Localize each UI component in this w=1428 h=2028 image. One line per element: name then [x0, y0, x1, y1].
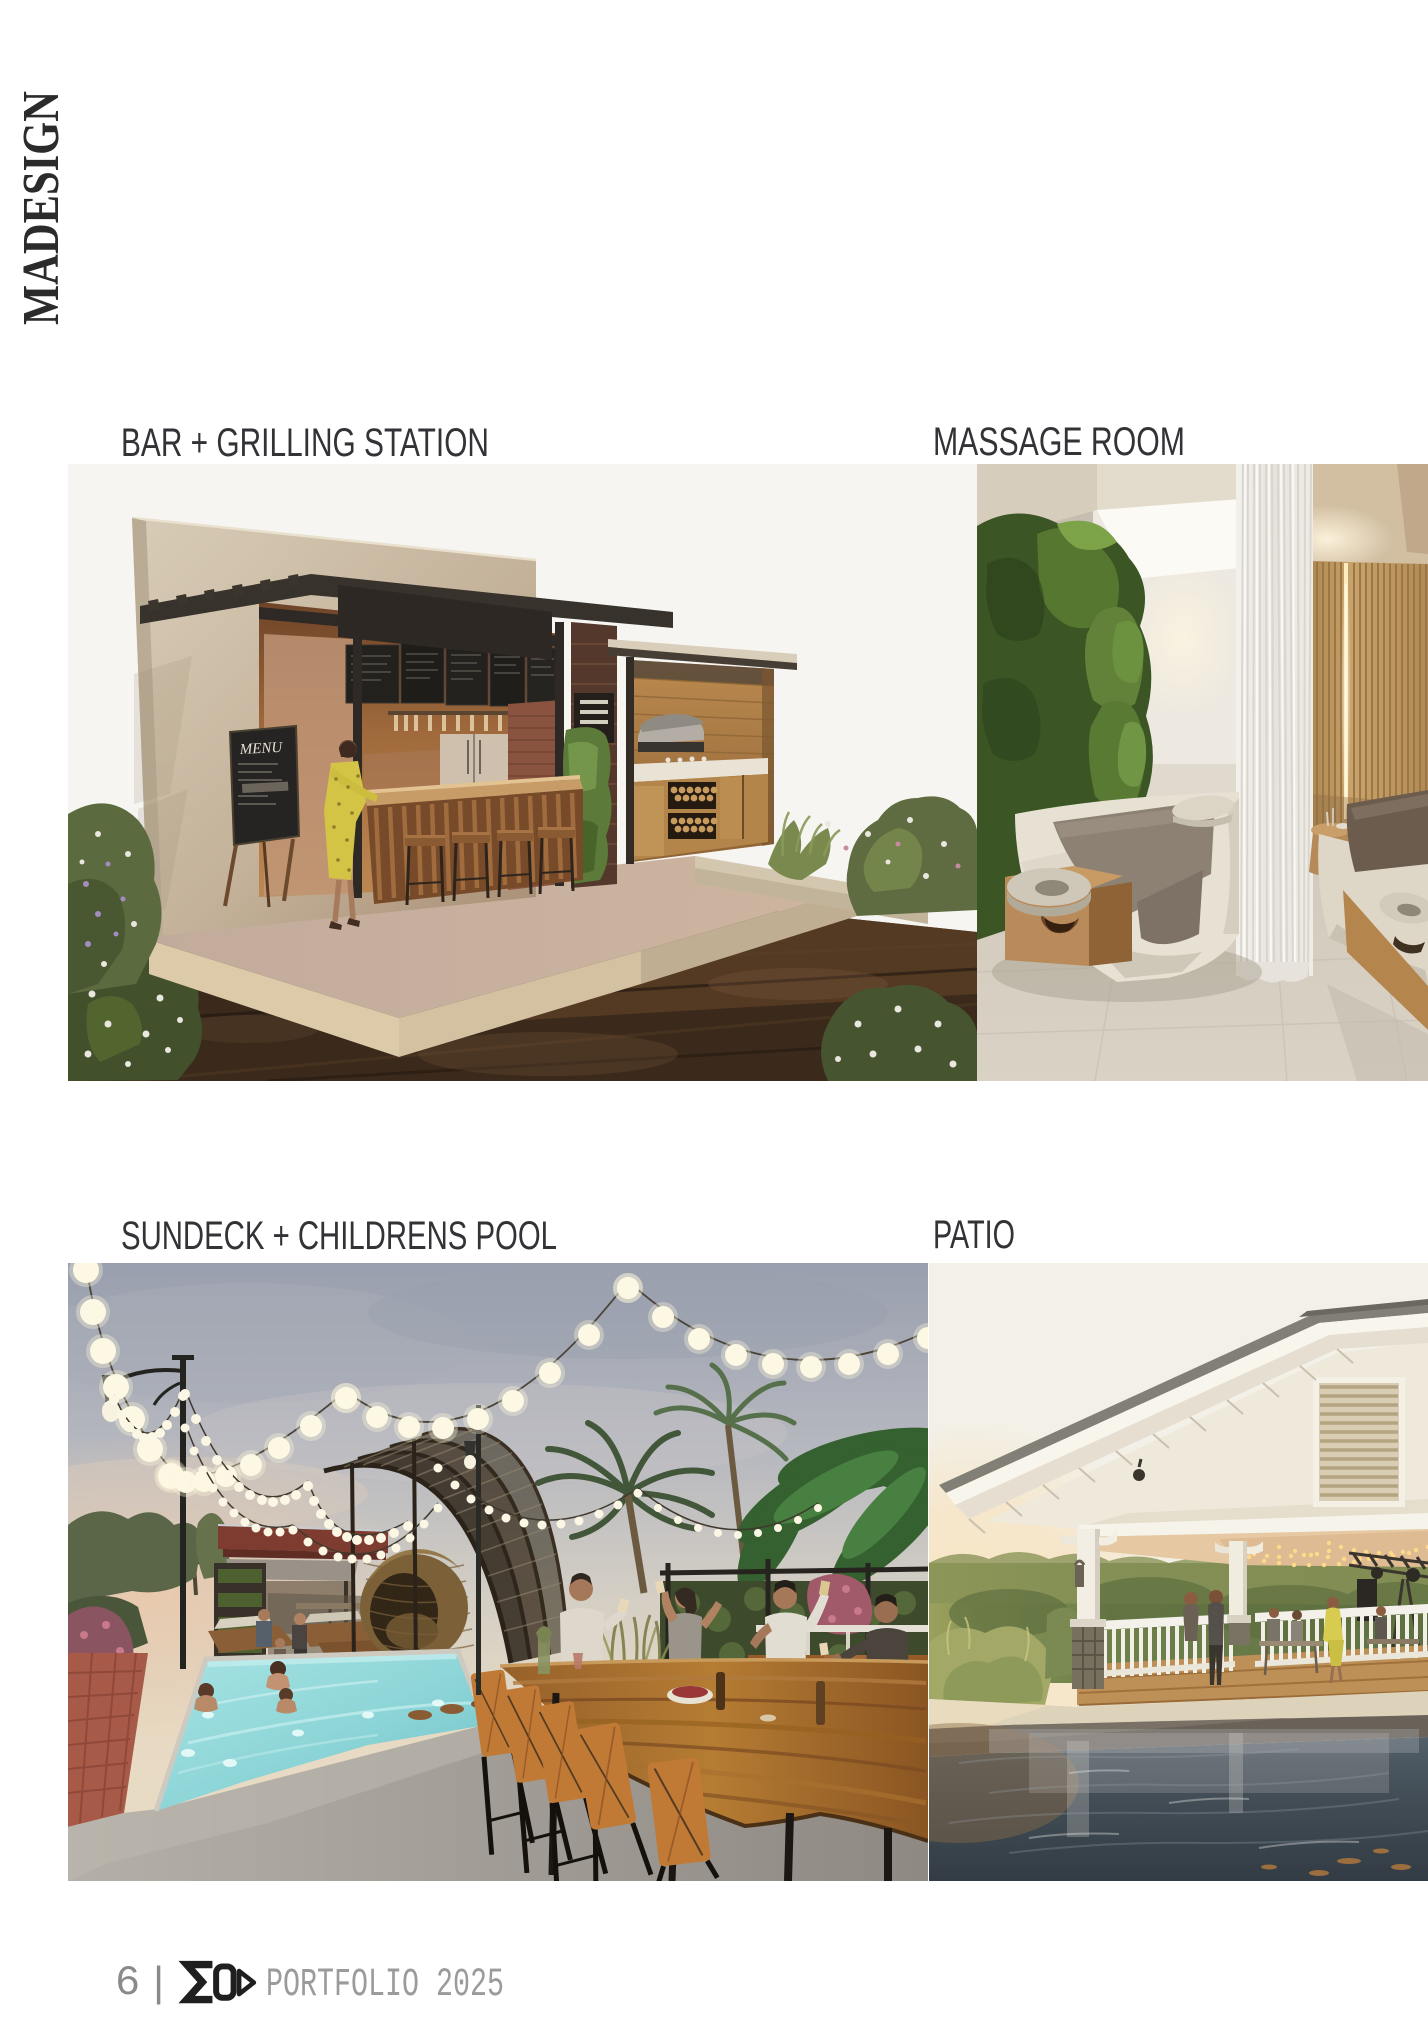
- svg-text:6: 6: [115, 1959, 140, 2007]
- svg-text:SUNDECK + CHILDRENS POOL: SUNDECK + CHILDRENS POOL: [121, 1214, 557, 1258]
- svg-text:MADESIGN: MADESIGN: [13, 91, 70, 325]
- svg-text:BAR + GRILLING STATION: BAR + GRILLING STATION: [121, 421, 489, 465]
- svg-text:PORTFOLIO 2025: PORTFOLIO 2025: [266, 1963, 504, 2008]
- svg-text:PATIO: PATIO: [933, 1213, 1015, 1257]
- svg-text:MENU: MENU: [238, 740, 283, 758]
- svg-text:|: |: [146, 1961, 171, 2009]
- svg-text:MASSAGE ROOM: MASSAGE ROOM: [933, 420, 1185, 464]
